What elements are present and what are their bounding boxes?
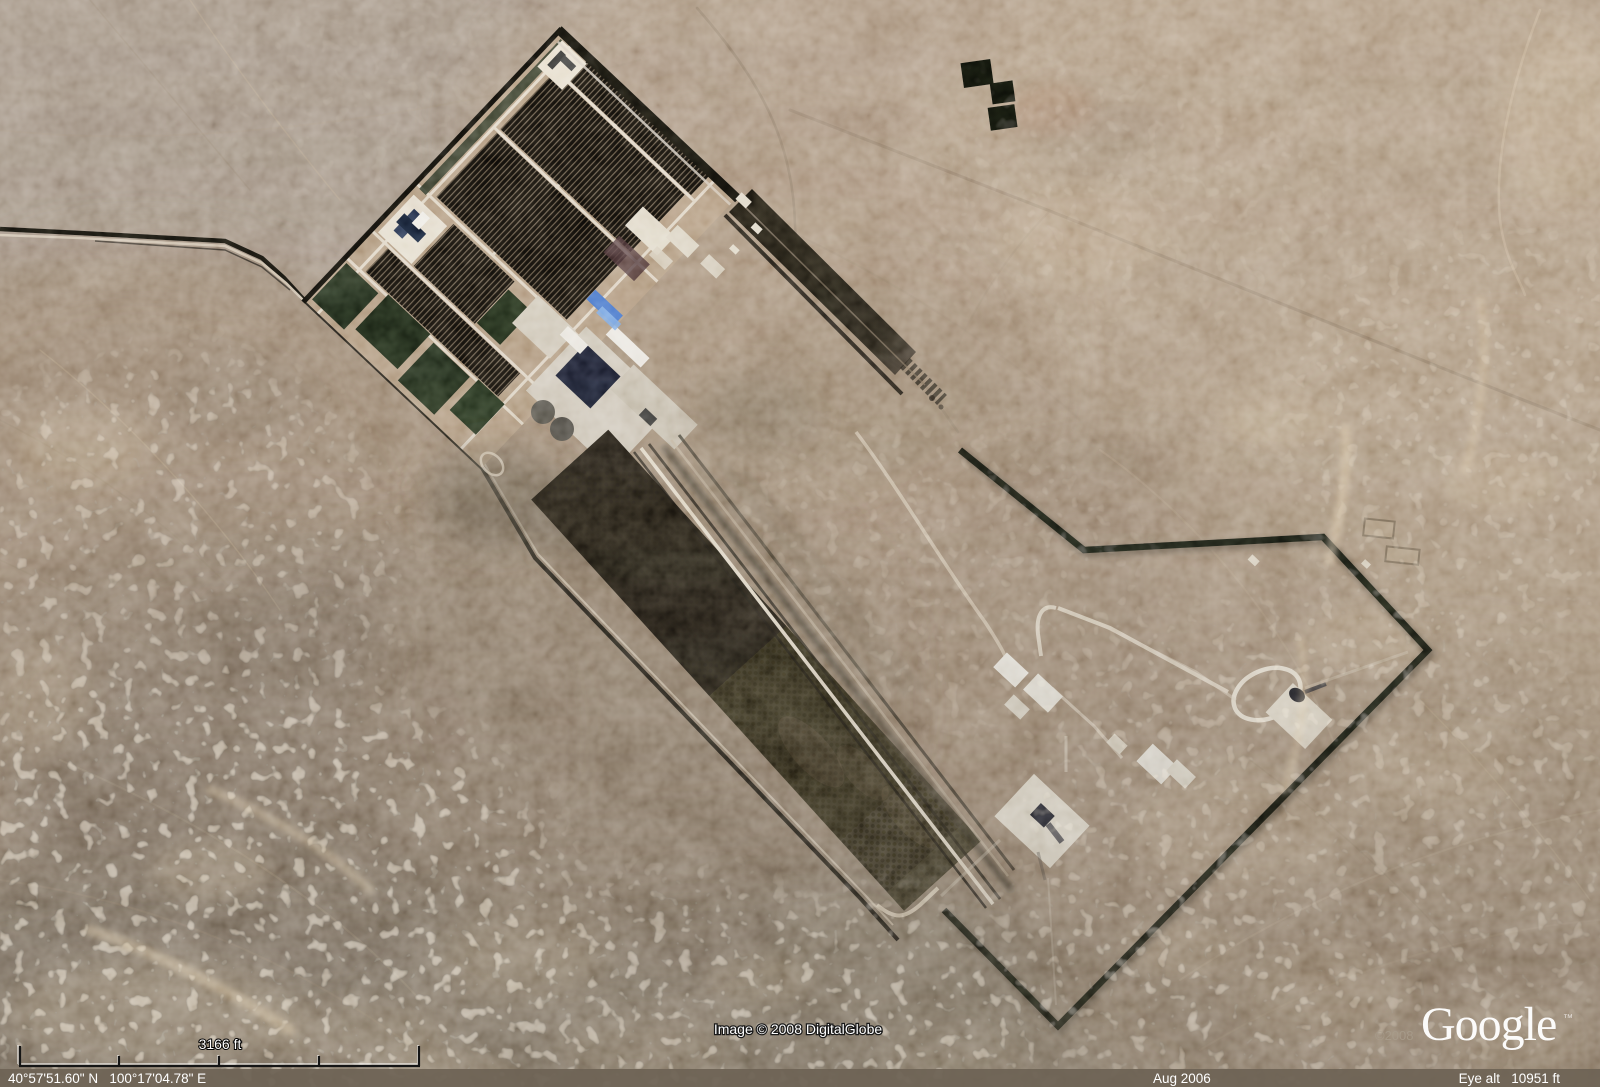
svg-text:Image © 2008 DigitalGlobe: Image © 2008 DigitalGlobe [714, 1021, 883, 1037]
svg-text:40°57'51.60" N 100°17'04.78": 40°57'51.60" N 100°17'04.78" E [8, 1071, 206, 1086]
svg-text:Google: Google [1421, 998, 1556, 1051]
svg-text:Eye alt 10951 ft: Eye alt 10951 ft [1459, 1071, 1561, 1086]
svg-text:©2008: ©2008 [1375, 1028, 1414, 1043]
svg-text:3166 ft: 3166 ft [199, 1036, 242, 1052]
svg-text:™: ™ [1563, 1013, 1573, 1024]
svg-text:Aug 2006: Aug 2006 [1153, 1071, 1211, 1086]
